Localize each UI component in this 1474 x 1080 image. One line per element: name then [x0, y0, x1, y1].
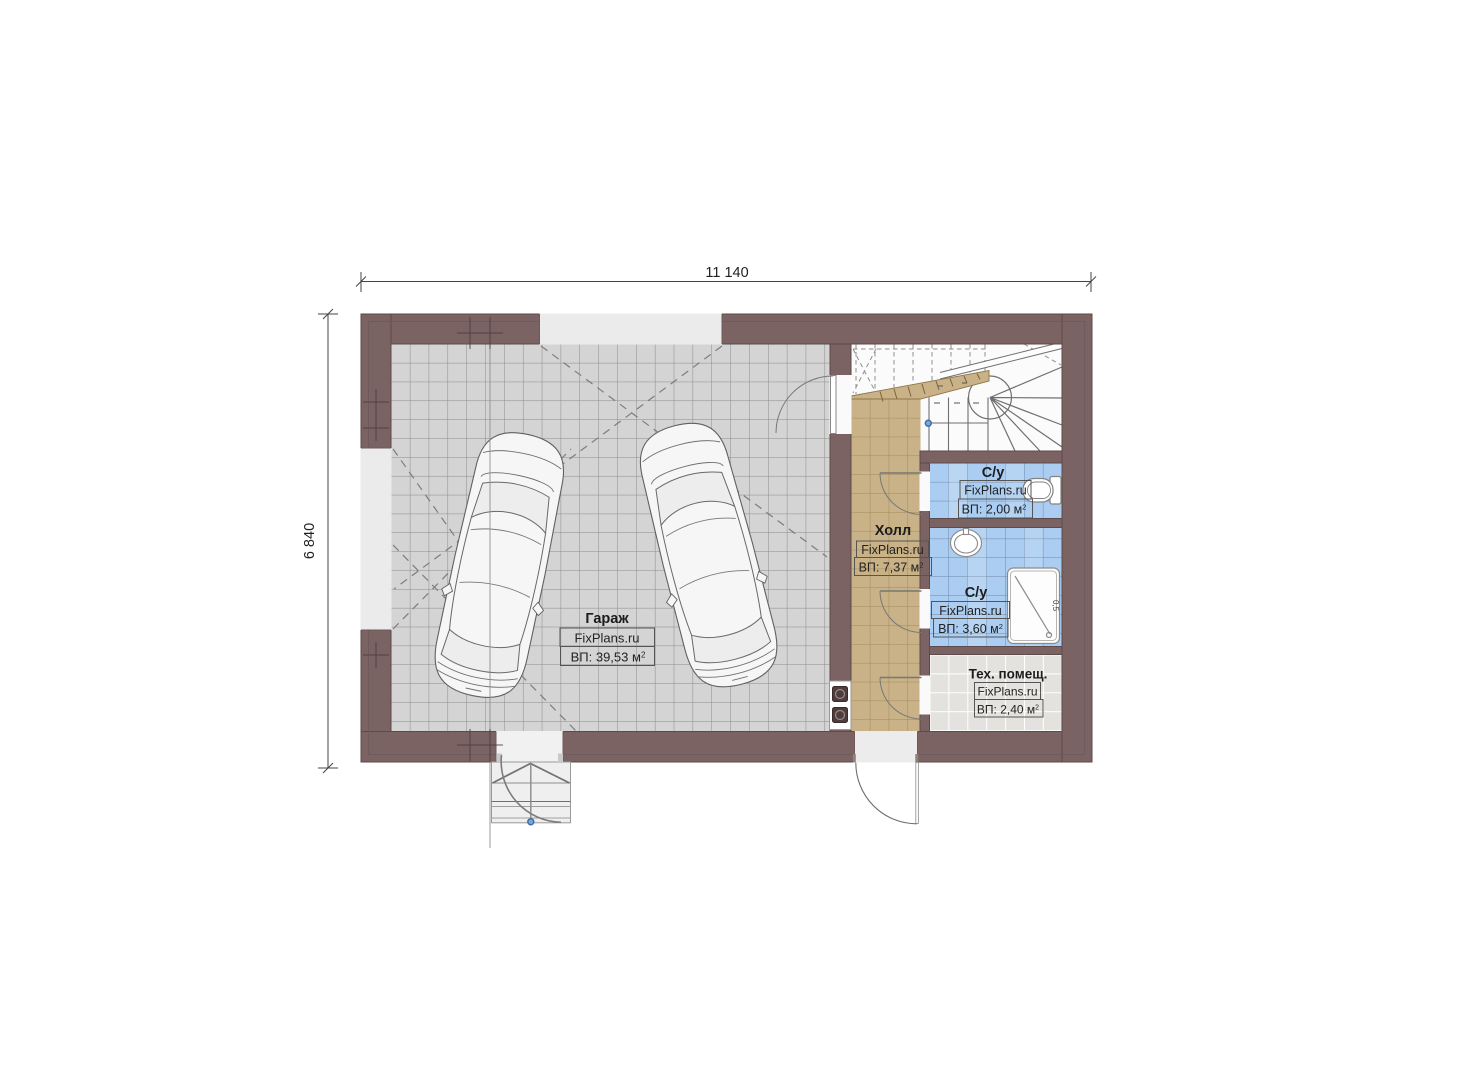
- svg-text:ВП: 3,60 м2: ВП: 3,60 м2: [938, 622, 1003, 636]
- svg-text:Холл: Холл: [875, 523, 911, 539]
- svg-text:ВП: 2,00 м2: ВП: 2,00 м2: [962, 503, 1027, 517]
- svg-text:11 140: 11 140: [705, 265, 748, 281]
- svg-text:С/у: С/у: [965, 585, 988, 601]
- svg-text:ВП: 39,53 м2: ВП: 39,53 м2: [571, 650, 646, 665]
- svg-text:FixPlans.ru: FixPlans.ru: [977, 685, 1037, 699]
- svg-text:0,5: 0,5: [1051, 600, 1060, 612]
- svg-text:Тех. помещ.: Тех. помещ.: [969, 667, 1048, 682]
- svg-text:Гараж: Гараж: [585, 611, 629, 627]
- svg-text:6 840: 6 840: [302, 523, 318, 559]
- svg-text:ВП: 7,37 м2: ВП: 7,37 м2: [859, 561, 924, 575]
- svg-text:FixPlans.ru: FixPlans.ru: [939, 604, 1002, 618]
- svg-text:С/у: С/у: [982, 465, 1005, 481]
- svg-text:ВП: 2,40 м2: ВП: 2,40 м2: [977, 703, 1039, 717]
- svg-text:FixPlans.ru: FixPlans.ru: [964, 484, 1027, 498]
- svg-text:FixPlans.ru: FixPlans.ru: [861, 543, 924, 557]
- svg-text:FixPlans.ru: FixPlans.ru: [574, 631, 639, 646]
